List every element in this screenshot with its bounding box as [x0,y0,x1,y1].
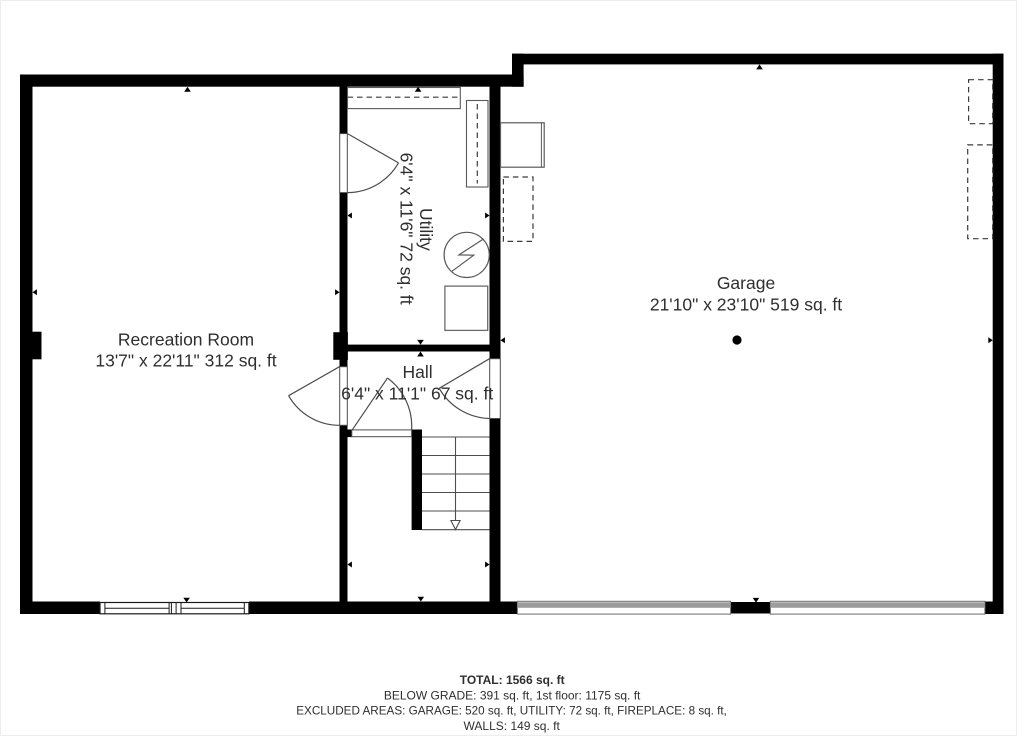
svg-text:BELOW GRADE: 391 sq. ft, 1st f: BELOW GRADE: 391 sq. ft, 1st floor: 1175… [384,688,641,702]
svg-text:21'10" x 23'10" 519 sq. ft: 21'10" x 23'10" 519 sq. ft [650,294,842,314]
svg-text:Recreation Room: Recreation Room [118,330,254,350]
svg-text:13'7" x 22'11" 312 sq. ft: 13'7" x 22'11" 312 sq. ft [95,351,276,371]
svg-text:EXCLUDED AREAS: GARAGE: 520 sq: EXCLUDED AREAS: GARAGE: 520 sq. ft, UTIL… [296,705,727,718]
svg-text:Utility: Utility [416,208,436,251]
svg-text:WALLS: 149 sq. ft: WALLS: 149 sq. ft [464,719,561,733]
svg-text:6'4" x 11'6" 72 sq. ft: 6'4" x 11'6" 72 sq. ft [397,153,417,305]
svg-text:Hall: Hall [403,362,433,382]
svg-text:6'4" x 11'1" 67 sq. ft: 6'4" x 11'1" 67 sq. ft [341,383,493,403]
svg-text:TOTAL: 1566 sq. ft: TOTAL: 1566 sq. ft [460,673,565,687]
svg-text:Garage: Garage [717,273,775,293]
